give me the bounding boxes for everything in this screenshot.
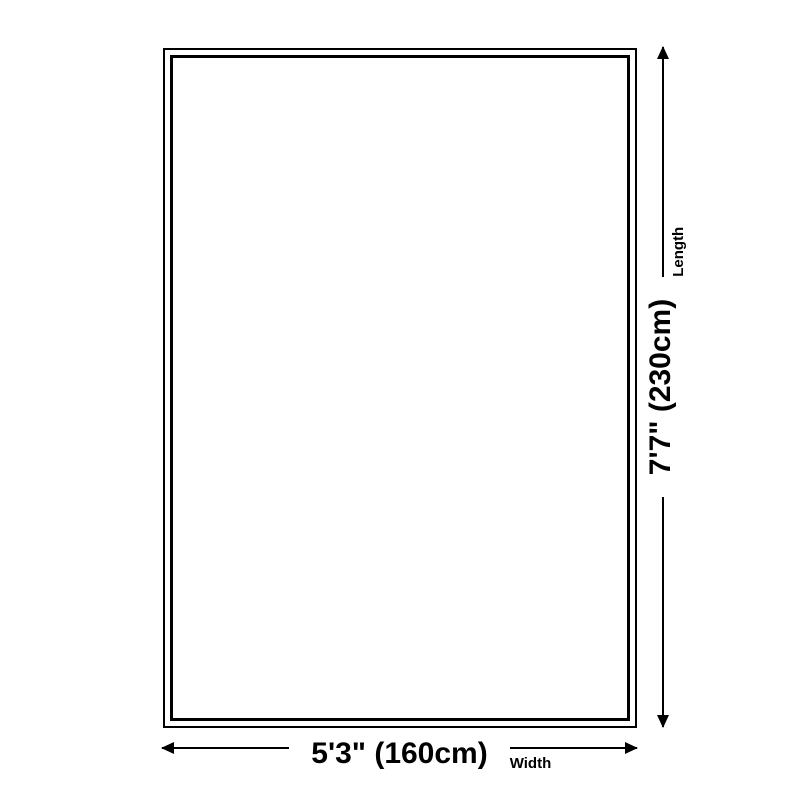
width-axis-label: Width bbox=[510, 756, 552, 772]
width-dimension: 5'3" (160cm) Width bbox=[162, 730, 637, 766]
length-dimension-line-bottom bbox=[662, 497, 664, 727]
arrow-down-icon bbox=[657, 715, 669, 728]
width-dimension-line-left bbox=[162, 747, 289, 749]
width-value: 5'3" (160cm) bbox=[303, 736, 495, 772]
arrow-up-icon bbox=[657, 46, 669, 59]
width-dimension-line-right: Width bbox=[510, 747, 637, 749]
length-value: 7'7" (230cm) bbox=[643, 291, 679, 483]
length-dimension-line-top: Length bbox=[662, 47, 664, 277]
rug-outline bbox=[163, 48, 637, 728]
rug-inner-outline bbox=[170, 55, 630, 721]
size-diagram: 5'3" (160cm) Width 7'7" (230cm) Length bbox=[0, 0, 800, 800]
length-axis-label: Length bbox=[671, 227, 687, 277]
arrow-left-icon bbox=[161, 742, 174, 754]
length-dimension: 7'7" (230cm) Length bbox=[645, 47, 681, 727]
arrow-right-icon bbox=[625, 742, 638, 754]
